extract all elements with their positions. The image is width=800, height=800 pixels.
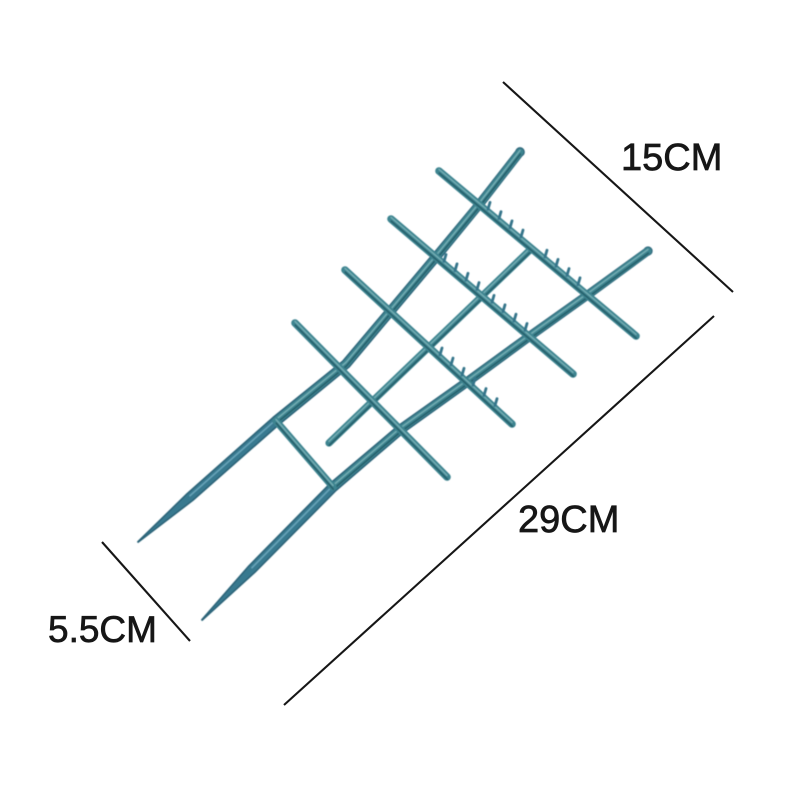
svg-text:15CM: 15CM bbox=[621, 137, 722, 179]
svg-text:5.5CM: 5.5CM bbox=[48, 609, 157, 650]
svg-text:29CM: 29CM bbox=[518, 499, 619, 541]
